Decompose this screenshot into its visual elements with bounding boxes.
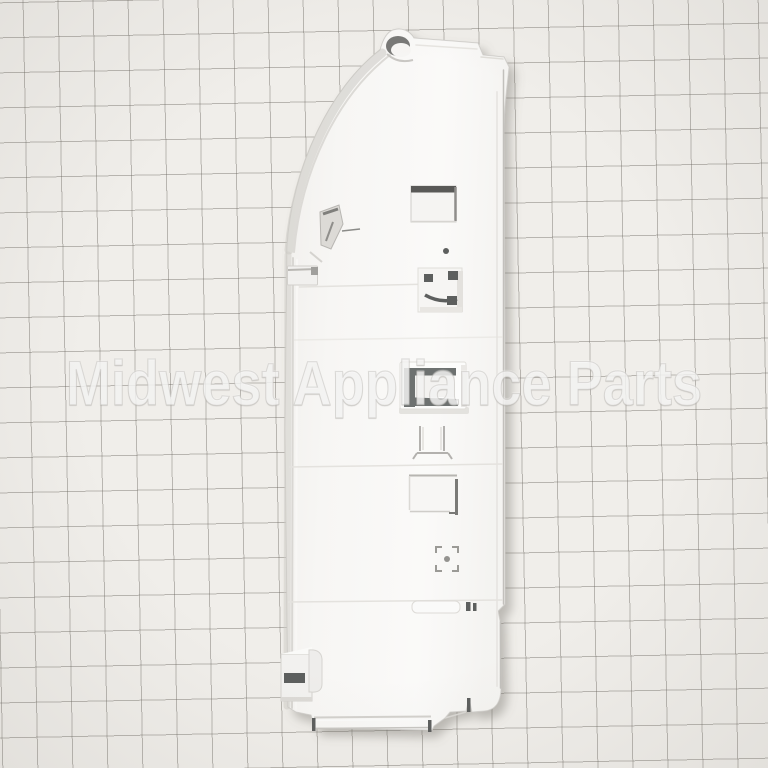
flange-tick-right bbox=[428, 720, 432, 732]
corner-notch-tick bbox=[467, 698, 471, 712]
bottom-tab-slot bbox=[284, 673, 305, 683]
lower-square-cutout bbox=[409, 474, 458, 515]
side-tab bbox=[288, 266, 319, 285]
bottom-ridge bbox=[412, 601, 460, 613]
left-edge-ridge bbox=[292, 258, 293, 708]
bottom-tab-hook bbox=[309, 650, 322, 692]
appliance-panel-part bbox=[0, 0, 768, 768]
pivot-dot bbox=[443, 248, 449, 254]
flange-tick-left bbox=[312, 718, 316, 731]
latch-recess-block bbox=[399, 362, 469, 414]
product-photo: Midwest Appliance Parts bbox=[0, 0, 768, 768]
upper-rect-cutout bbox=[411, 186, 456, 222]
